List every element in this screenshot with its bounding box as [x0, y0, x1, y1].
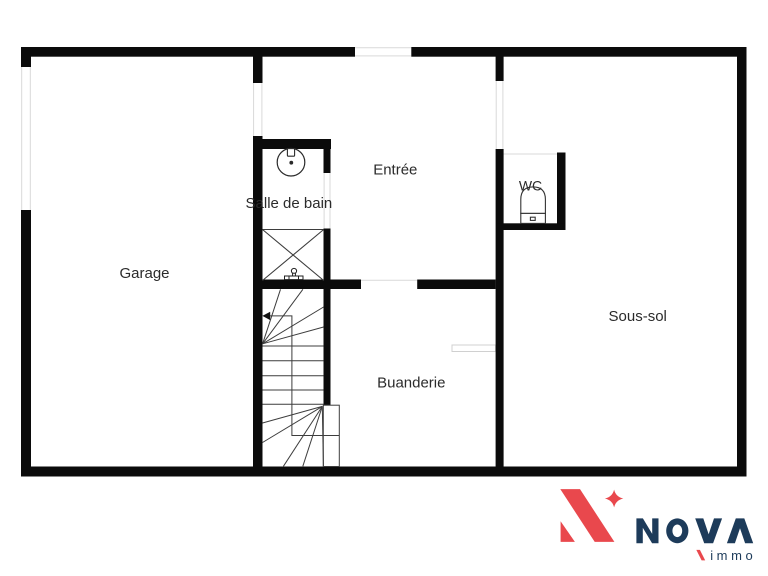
svg-text:Sous-sol: Sous-sol	[609, 308, 667, 325]
svg-text:Garage: Garage	[119, 265, 169, 282]
svg-text:immo: immo	[710, 548, 756, 563]
svg-text:Buanderie: Buanderie	[377, 375, 445, 392]
svg-text:Salle de bain: Salle de bain	[246, 195, 333, 212]
svg-text:WC: WC	[519, 177, 542, 193]
svg-text:Entrée: Entrée	[373, 161, 417, 178]
